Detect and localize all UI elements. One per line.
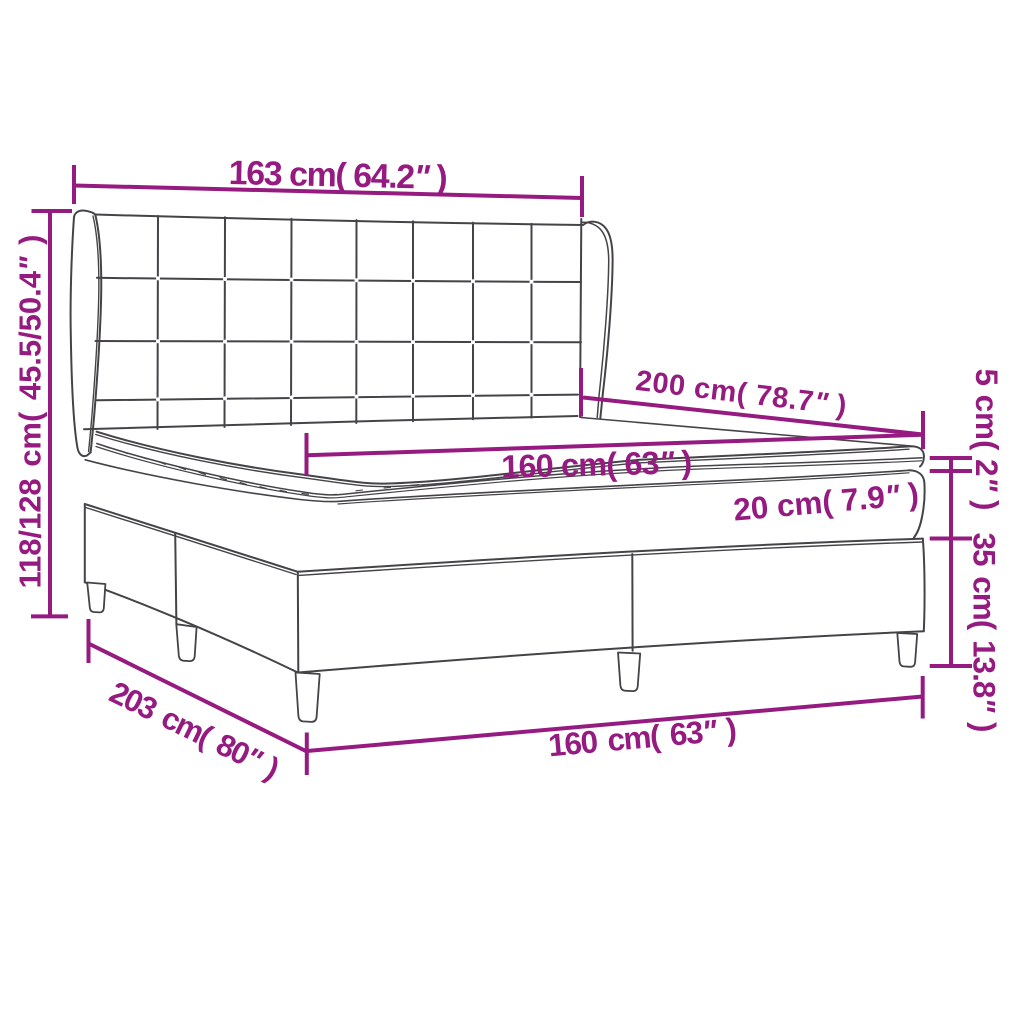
svg-text:118/128 cm( 45.5/50.4" ): 118/128 cm( 45.5/50.4" ) (13, 235, 48, 589)
svg-text:5 cm( 2" ): 5 cm( 2" ) (969, 369, 1005, 511)
svg-text:160 cm( 63" ): 160 cm( 63" ) (501, 444, 693, 485)
svg-text:35 cm( 13.8" ): 35 cm( 13.8" ) (967, 533, 1003, 733)
svg-text:163 cm( 64.2" ): 163 cm( 64.2" ) (228, 154, 448, 197)
